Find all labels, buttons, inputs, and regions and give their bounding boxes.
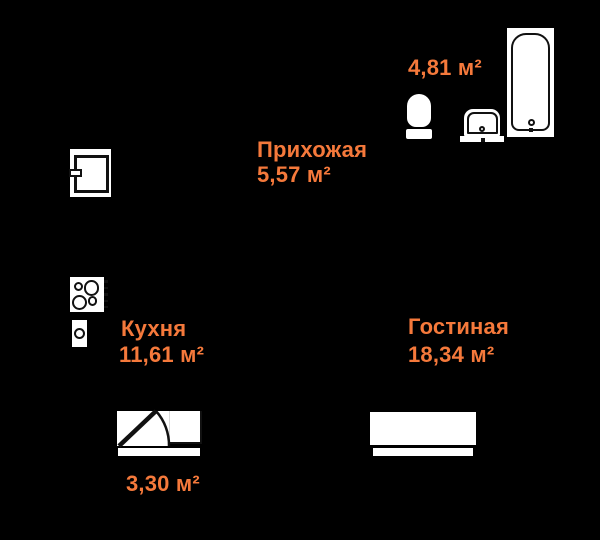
burner-large-icon	[84, 280, 100, 296]
floor-plan: 4,81 м² Прихожая 5,57 м² Кухня 11,61 м² …	[0, 0, 600, 540]
toilet-tank	[406, 129, 432, 139]
door-leaf	[119, 411, 156, 446]
stove-knob	[104, 306, 108, 309]
door-swing-icon	[113, 407, 205, 452]
washbasin-tap	[481, 138, 485, 142]
bathtub-plug	[529, 128, 534, 133]
area-label-living: 18,34 м²	[408, 344, 494, 366]
fridge-icon	[70, 149, 111, 197]
area-label-hallway: 5,57 м²	[257, 164, 331, 186]
area-label-bathroom: 4,81 м²	[408, 57, 482, 79]
washbasin-icon	[464, 109, 500, 136]
sofa-front	[373, 448, 473, 456]
room-label-hallway: Прихожая	[257, 139, 367, 161]
room-label-living: Гостиная	[408, 316, 509, 338]
area-label-kitchen: 11,61 м²	[119, 344, 204, 366]
kitchen-sink-icon	[72, 320, 87, 347]
stove-knob	[104, 300, 108, 303]
area-label-balcony: 3,30 м²	[126, 473, 200, 495]
fridge-handle	[69, 169, 82, 177]
bathtub-drain	[528, 119, 535, 126]
room-label-kitchen: Кухня	[121, 318, 186, 340]
stove-knob	[104, 293, 108, 296]
burner-small-icon	[74, 282, 83, 291]
sofa-icon	[370, 412, 476, 445]
washbasin-drain	[479, 126, 485, 132]
stove-knob	[104, 287, 108, 290]
door-arc	[156, 411, 169, 446]
stove-icon	[70, 277, 104, 312]
sink-bowl	[74, 328, 85, 339]
stove-knob	[104, 280, 108, 283]
burner-small-icon	[88, 296, 98, 306]
toilet-icon	[407, 94, 431, 127]
bathtub-rim	[511, 33, 550, 131]
bathtub-icon	[507, 28, 554, 137]
burner-large-icon	[72, 295, 88, 311]
